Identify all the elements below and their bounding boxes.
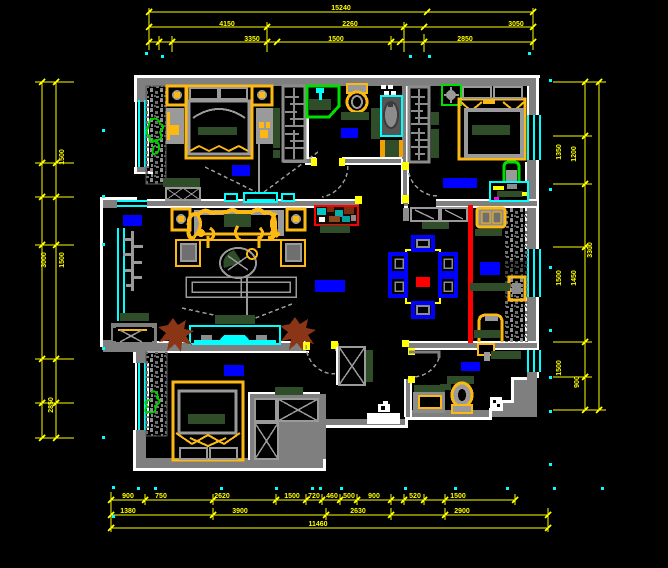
svg-text:3300: 3300 <box>587 242 594 258</box>
svg-text:900: 900 <box>368 493 380 500</box>
svg-text:750: 750 <box>155 493 167 500</box>
svg-text:1200: 1200 <box>571 146 578 162</box>
svg-text:500: 500 <box>343 493 355 500</box>
svg-text:900: 900 <box>122 493 134 500</box>
svg-text:3350: 3350 <box>244 36 260 43</box>
svg-text:2850: 2850 <box>457 36 473 43</box>
svg-text:1500: 1500 <box>556 270 563 286</box>
svg-text:11460: 11460 <box>308 521 327 528</box>
svg-text:2620: 2620 <box>214 493 230 500</box>
svg-text:2630: 2630 <box>350 508 366 515</box>
svg-text:2260: 2260 <box>342 21 358 28</box>
svg-text:4150: 4150 <box>219 21 235 28</box>
svg-text:1500: 1500 <box>328 36 344 43</box>
svg-text:1500: 1500 <box>556 360 563 376</box>
svg-text:520: 520 <box>409 493 421 500</box>
svg-text:1500: 1500 <box>59 252 66 268</box>
svg-text:2900: 2900 <box>454 508 470 515</box>
svg-text:720: 720 <box>308 493 320 500</box>
svg-text:900: 900 <box>574 376 581 388</box>
svg-text:3900: 3900 <box>232 508 248 515</box>
svg-text:2850: 2850 <box>48 397 55 413</box>
svg-text:1500: 1500 <box>450 493 466 500</box>
svg-text:1350: 1350 <box>556 144 563 160</box>
svg-text:15240: 15240 <box>331 5 351 12</box>
svg-text:1380: 1380 <box>120 508 136 515</box>
svg-text:3000: 3000 <box>41 252 48 268</box>
svg-text:3050: 3050 <box>508 21 524 28</box>
svg-text:460: 460 <box>326 493 338 500</box>
svg-text:1500: 1500 <box>59 149 66 165</box>
svg-text:1500: 1500 <box>284 493 300 500</box>
svg-text:1450: 1450 <box>571 270 578 286</box>
